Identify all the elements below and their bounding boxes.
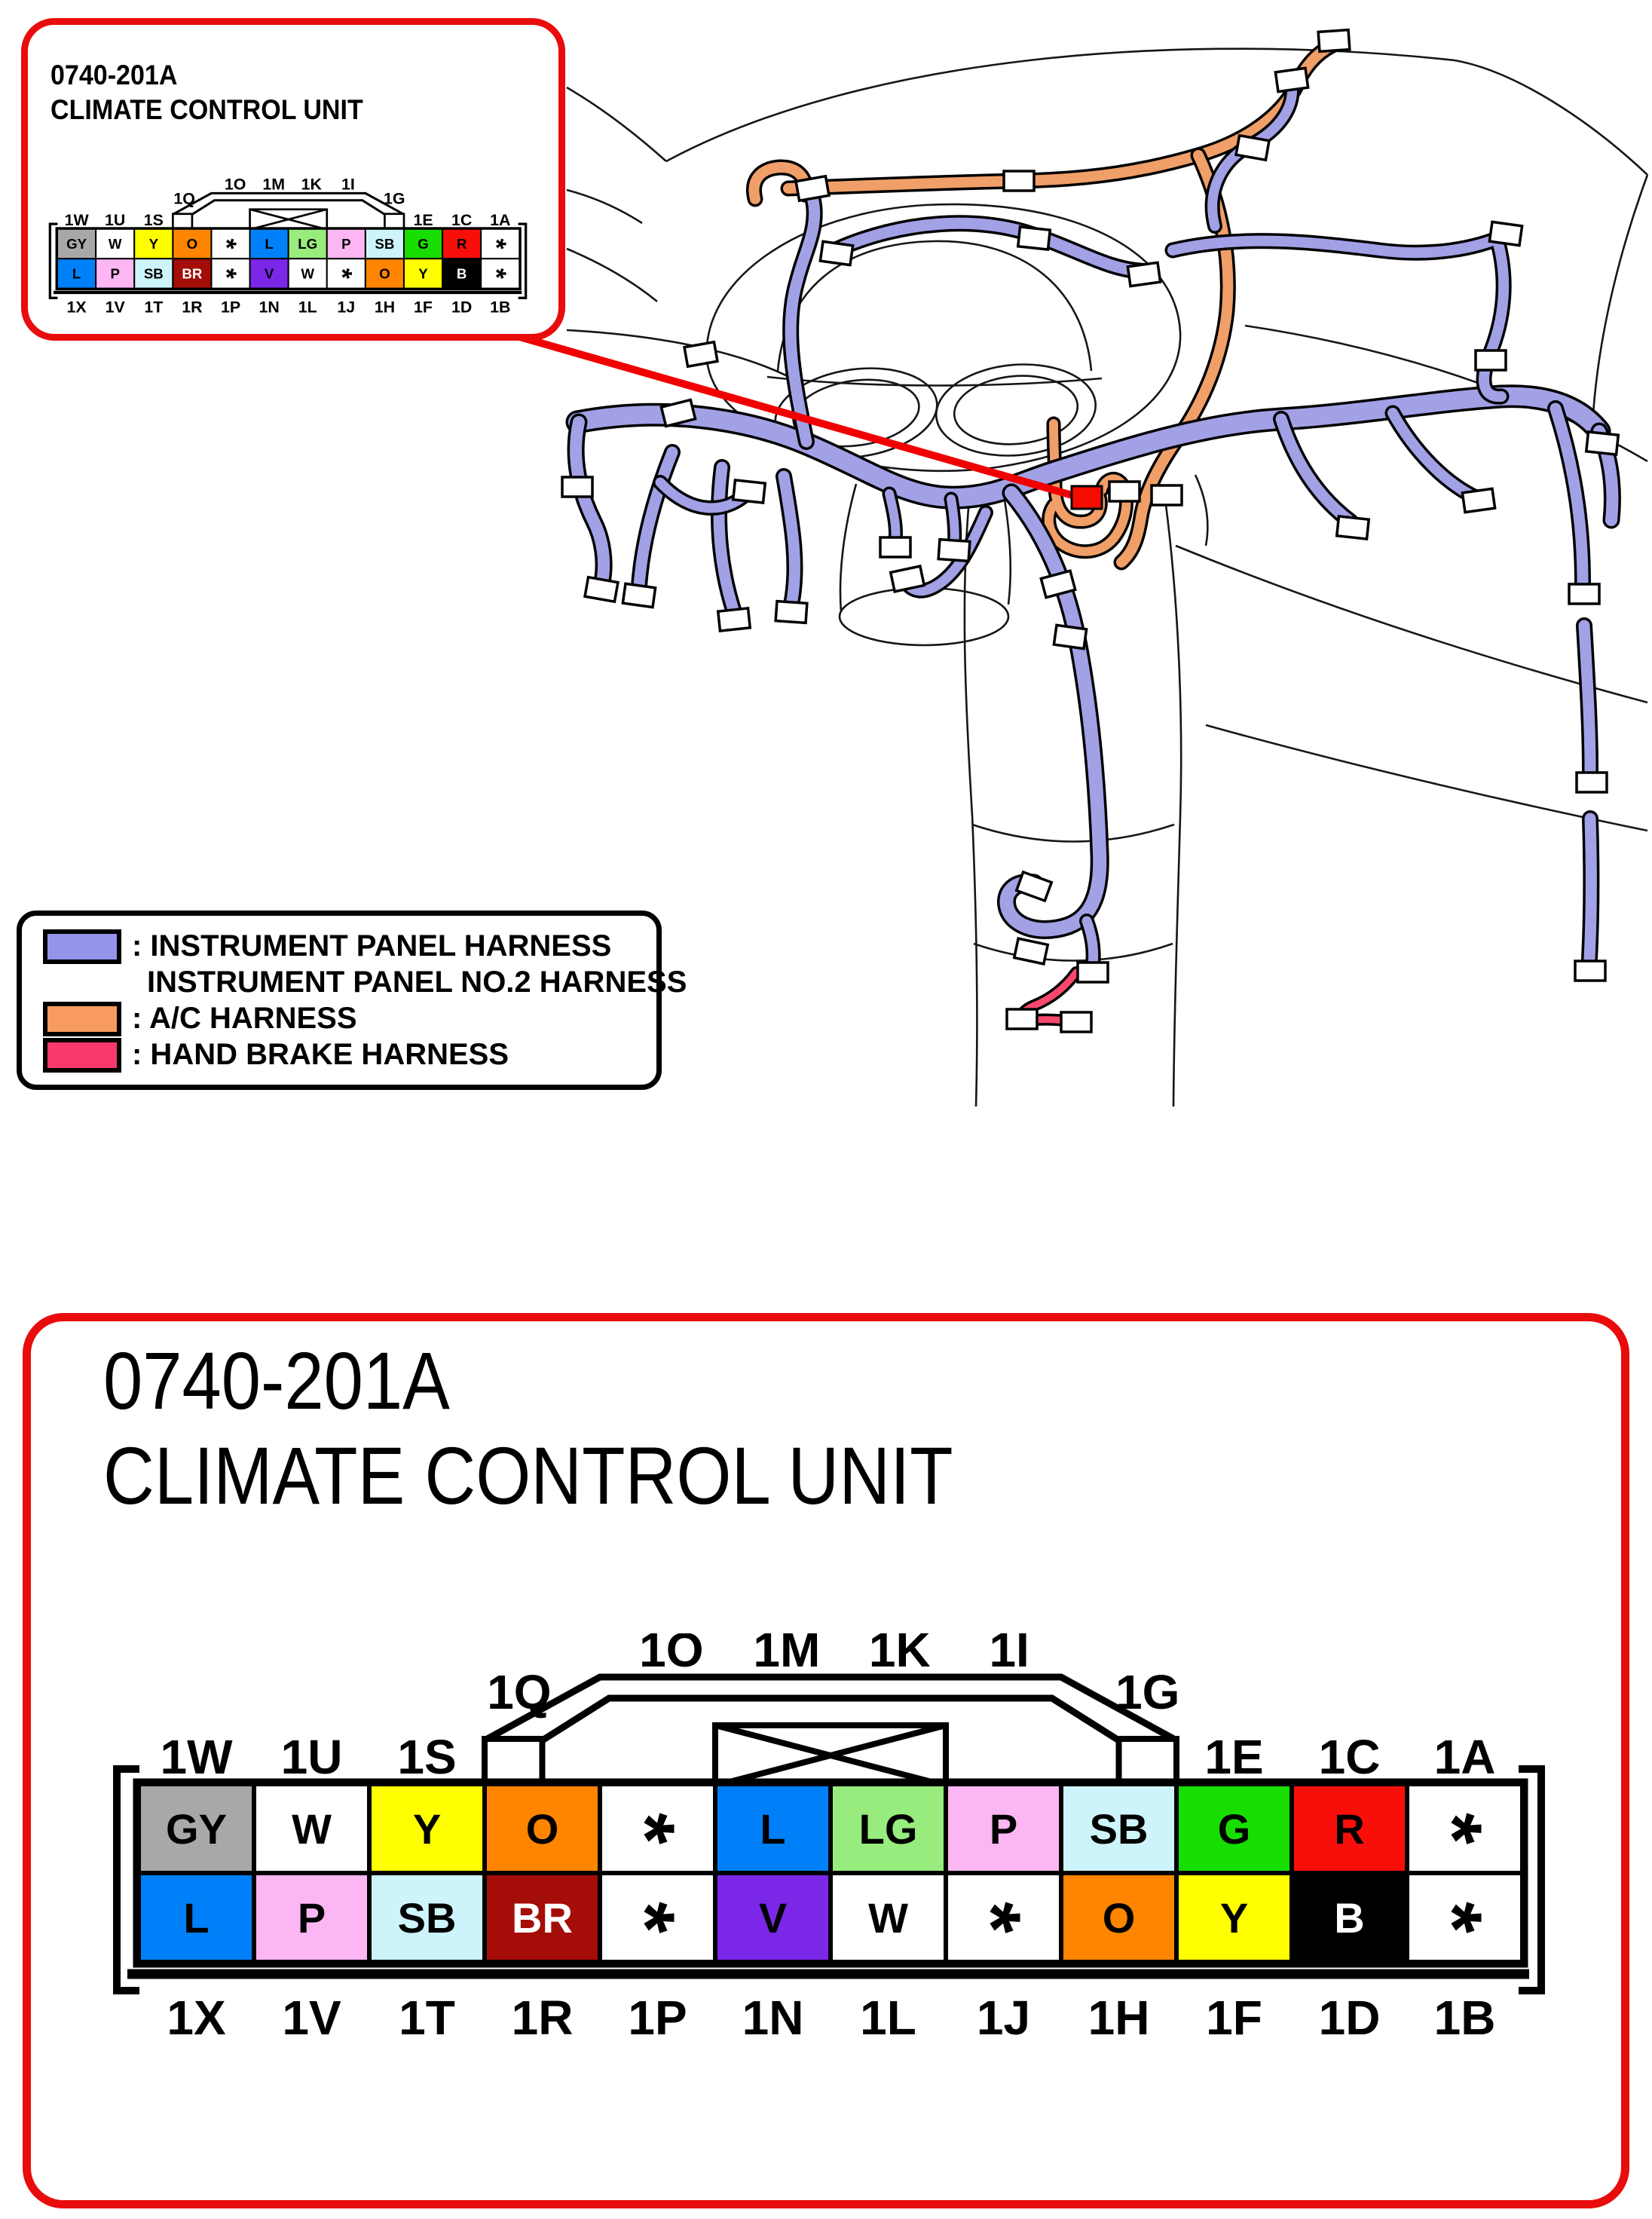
connector-label: BR bbox=[512, 1894, 573, 1942]
connector-label: B bbox=[457, 266, 467, 282]
connector-label: SB bbox=[144, 266, 164, 282]
connector-label: P bbox=[990, 1805, 1017, 1853]
connector-box bbox=[585, 577, 618, 602]
legend-items: : INSTRUMENT PANEL HARNESSINSTRUMENT PAN… bbox=[43, 928, 656, 1073]
inset-code: 0740-201A bbox=[50, 58, 363, 93]
connector-label: 1Q bbox=[173, 189, 194, 207]
connector-label: 1Q bbox=[487, 1665, 551, 1719]
connector-label: 1T bbox=[144, 298, 163, 317]
connector-label: B bbox=[1334, 1894, 1364, 1942]
connector-label: * bbox=[481, 238, 512, 249]
connector-label: 1A bbox=[490, 211, 510, 229]
connector-label: 1X bbox=[167, 1991, 226, 2045]
connector-box bbox=[1476, 350, 1506, 370]
connector-label: 1B bbox=[1434, 1991, 1496, 2045]
connector-box bbox=[733, 480, 765, 503]
connector-pinout-large: GYWYO*LLGPSBGR*LPSBBR*VW*OYB*1W1U1S1E1C1… bbox=[105, 1633, 1553, 2060]
legend: : INSTRUMENT PANEL HARNESSINSTRUMENT PAN… bbox=[17, 911, 662, 1090]
connector-box bbox=[718, 608, 750, 631]
connector-label: * bbox=[481, 268, 512, 279]
connector-label: 1F bbox=[414, 298, 433, 317]
connector-label: 1E bbox=[413, 211, 433, 229]
connector-label: 1T bbox=[399, 1991, 455, 2045]
connector-label: 1U bbox=[281, 1730, 343, 1784]
connector-box bbox=[1018, 227, 1050, 249]
connector-label: 1P bbox=[221, 298, 240, 317]
connector-label: GY bbox=[66, 236, 87, 252]
connector-label: * bbox=[1409, 1813, 1500, 1844]
connector-label: * bbox=[212, 268, 243, 279]
detail-title: 0740-201A CLIMATE CONTROL UNIT bbox=[103, 1333, 953, 1523]
service-manual-page: 0740-201A CLIMATE CONTROL UNIT GYWYO*LLG… bbox=[0, 0, 1652, 2219]
connector-label: 1K bbox=[869, 1633, 931, 1677]
connector-box bbox=[1109, 482, 1140, 501]
connector-label: 1B bbox=[490, 298, 510, 317]
connector-label: 1X bbox=[67, 298, 87, 317]
climate-unit-inset-callout: 0740-201A CLIMATE CONTROL UNIT GYWYO*LLG… bbox=[21, 18, 565, 341]
connector-box bbox=[684, 342, 717, 367]
connector-label: 1C bbox=[1319, 1730, 1381, 1784]
hand-brake-harness-swatch bbox=[43, 1038, 121, 1073]
connector-box bbox=[1127, 262, 1160, 286]
detail-name: CLIMATE CONTROL UNIT bbox=[103, 1428, 953, 1523]
connector-label: 1S bbox=[144, 211, 164, 229]
connector-label: * bbox=[1409, 1902, 1500, 1933]
connector-box bbox=[880, 537, 910, 557]
connector-pinout-svg: GYWYO*LLGPSBGR*LPSBBR*VW*OYB*1W1U1S1E1C1… bbox=[46, 179, 530, 321]
connector-box bbox=[938, 540, 970, 562]
connector-label: 1V bbox=[282, 1991, 341, 2045]
connector-label: G bbox=[1218, 1805, 1251, 1853]
connector-label: R bbox=[1334, 1805, 1364, 1853]
connector-label: R bbox=[457, 236, 467, 252]
connector-label: LG bbox=[298, 236, 317, 252]
connector-label: 1W bbox=[65, 211, 90, 229]
connector-label: 1O bbox=[639, 1633, 703, 1677]
connector-box bbox=[623, 583, 655, 607]
connector-label: GY bbox=[166, 1805, 227, 1853]
climate-unit-detail-callout: 0740-201A CLIMATE CONTROL UNIT GYWYO*LLG… bbox=[23, 1313, 1629, 2208]
connector-label: L bbox=[183, 1894, 209, 1942]
connector-label: 1C bbox=[451, 211, 472, 229]
legend-item: : INSTRUMENT PANEL HARNESSINSTRUMENT PAN… bbox=[43, 928, 656, 1000]
connector-label: 1L bbox=[860, 1991, 916, 2045]
connector-label: 1N bbox=[742, 1991, 804, 2045]
connector-box bbox=[1577, 773, 1607, 792]
connector-pinout-svg: GYWYO*LLGPSBGR*LPSBBR*VW*OYB*1W1U1S1E1C1… bbox=[105, 1633, 1553, 2060]
ac-harness-swatch bbox=[43, 1002, 121, 1036]
connector-label: 1H bbox=[1088, 1991, 1150, 2045]
connector-label: Y bbox=[149, 236, 159, 252]
connector-label: 1K bbox=[301, 179, 323, 194]
connector-box bbox=[1569, 584, 1599, 604]
connector-box bbox=[1462, 488, 1494, 512]
connector-label: V bbox=[759, 1894, 787, 1942]
legend-item-label: : HAND BRAKE HARNESS bbox=[132, 1036, 509, 1073]
connector-box bbox=[1014, 938, 1048, 964]
connector-label: 1M bbox=[262, 179, 285, 194]
legend-item: : HAND BRAKE HARNESS bbox=[43, 1036, 656, 1073]
connector-label: P bbox=[341, 236, 350, 252]
connector-label: 1G bbox=[384, 189, 405, 207]
connector-label: O bbox=[526, 1805, 559, 1853]
connector-label: 1J bbox=[977, 1991, 1030, 2045]
connector-label: W bbox=[301, 266, 314, 282]
connector-box bbox=[562, 477, 592, 497]
connector-label: SB bbox=[1090, 1805, 1149, 1853]
connector-box bbox=[1004, 171, 1034, 191]
connector-box bbox=[1236, 136, 1269, 161]
connector-pinout-small: GYWYO*LLGPSBGR*LPSBBR*VW*OYB*1W1U1S1E1C1… bbox=[46, 179, 530, 322]
connector-box bbox=[1489, 222, 1522, 245]
connector-label: L bbox=[760, 1805, 785, 1853]
detail-code: 0740-201A bbox=[103, 1333, 953, 1428]
connector-label: 1M bbox=[753, 1633, 820, 1677]
connector-label: 1W bbox=[161, 1730, 234, 1784]
connector-label: W bbox=[292, 1805, 332, 1853]
instrument-panel-harness-swatch bbox=[43, 929, 121, 964]
legend-item-label: : A/C HARNESS bbox=[132, 1000, 357, 1036]
connector-label: Y bbox=[418, 266, 428, 282]
connector-label: G bbox=[418, 236, 429, 252]
connector-label: LG bbox=[859, 1805, 918, 1853]
connector-label: Y bbox=[1220, 1894, 1248, 1942]
highlighted-climate-connector bbox=[1072, 486, 1102, 509]
connector-box bbox=[1575, 961, 1605, 981]
connector-box bbox=[1275, 68, 1308, 91]
connector-label: 1P bbox=[628, 1991, 687, 2045]
connector-label: 1R bbox=[182, 298, 202, 317]
connector-label: * bbox=[947, 1902, 1039, 1933]
connector-box bbox=[1318, 30, 1350, 52]
inset-name: CLIMATE CONTROL UNIT bbox=[50, 93, 363, 127]
connector-label: W bbox=[109, 236, 122, 252]
connector-label: 1S bbox=[397, 1730, 456, 1784]
connector-label: 1V bbox=[106, 298, 126, 317]
connector-label: 1D bbox=[1319, 1991, 1381, 2045]
connector-label: P bbox=[110, 266, 119, 282]
connector-label: Y bbox=[413, 1805, 441, 1853]
connector-label: 1O bbox=[225, 179, 246, 194]
connector-label: L bbox=[265, 236, 273, 252]
connector-label: * bbox=[601, 1902, 693, 1933]
connector-label: L bbox=[72, 266, 81, 282]
connector-label: 1A bbox=[1434, 1730, 1496, 1784]
connector-label: 1L bbox=[298, 298, 317, 317]
connector-label: 1I bbox=[989, 1633, 1029, 1677]
connector-label: 1E bbox=[1204, 1730, 1263, 1784]
connector-label: SB bbox=[398, 1894, 457, 1942]
inset-title: 0740-201A CLIMATE CONTROL UNIT bbox=[50, 58, 363, 127]
connector-box bbox=[1017, 872, 1051, 901]
connector-label: O bbox=[1103, 1894, 1136, 1942]
connector-label: 1N bbox=[259, 298, 279, 317]
connector-box bbox=[776, 601, 807, 623]
connector-label: V bbox=[265, 266, 274, 282]
connector-box bbox=[1007, 1009, 1037, 1029]
connector-label: P bbox=[298, 1894, 326, 1942]
connector-label: O bbox=[187, 236, 198, 252]
connector-box bbox=[1078, 963, 1108, 982]
connector-box bbox=[1061, 1012, 1091, 1032]
connector-label: W bbox=[868, 1894, 908, 1942]
connector-box bbox=[1054, 625, 1086, 648]
connector-label: 1D bbox=[451, 298, 472, 317]
connector-label: 1I bbox=[341, 179, 355, 194]
connector-label: 1F bbox=[1206, 1991, 1262, 2045]
connector-box bbox=[1152, 485, 1182, 505]
connector-box bbox=[1337, 516, 1369, 539]
connector-box bbox=[796, 176, 829, 201]
connector-label: * bbox=[327, 268, 358, 279]
connector-label: 1G bbox=[1115, 1665, 1179, 1719]
connector-label: BR bbox=[182, 266, 202, 282]
legend-item: : A/C HARNESS bbox=[43, 1000, 656, 1036]
legend-item-label: : INSTRUMENT PANEL HARNESSINSTRUMENT PAN… bbox=[132, 928, 687, 1000]
connector-box bbox=[820, 241, 852, 265]
connector-label: 1H bbox=[375, 298, 395, 317]
connector-label: * bbox=[212, 238, 243, 249]
connector-label: 1U bbox=[105, 211, 125, 229]
connector-label: SB bbox=[375, 236, 394, 252]
connector-label: 1R bbox=[512, 1991, 574, 2045]
connector-label: * bbox=[601, 1813, 693, 1844]
connector-box bbox=[1586, 432, 1618, 455]
connector-label: 1J bbox=[337, 298, 355, 317]
connector-label: O bbox=[379, 266, 390, 282]
